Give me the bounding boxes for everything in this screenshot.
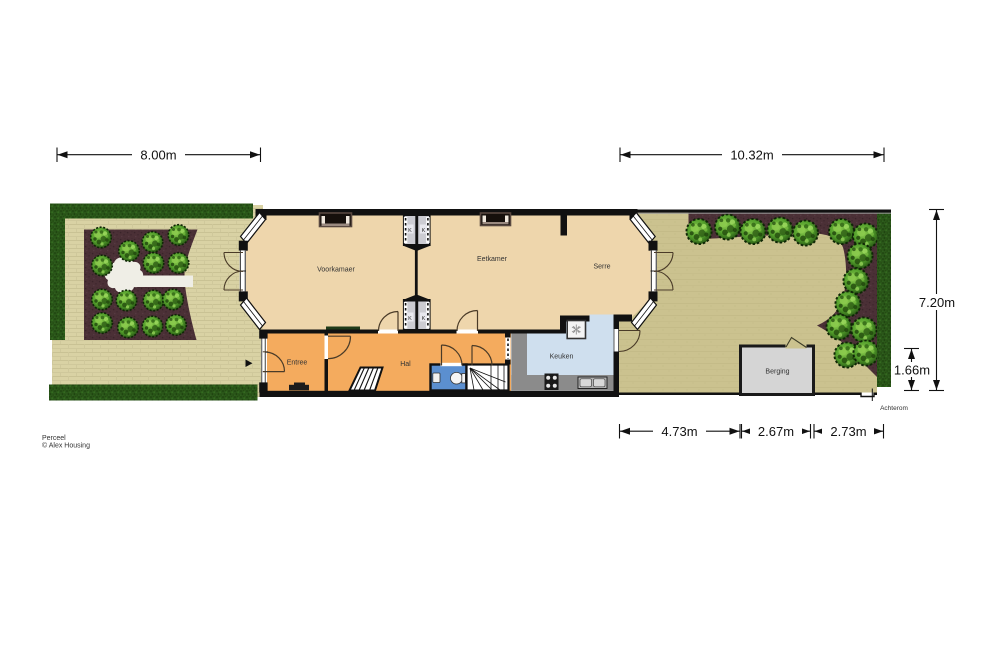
svg-text:Voorkamaer: Voorkamaer xyxy=(317,267,355,274)
svg-text:© Alex Housing: © Alex Housing xyxy=(42,442,90,450)
svg-text:K: K xyxy=(408,228,412,234)
svg-text:Perceel: Perceel xyxy=(42,435,66,442)
svg-text:Berging: Berging xyxy=(765,369,789,376)
svg-text:K: K xyxy=(408,316,412,322)
svg-text:Keuken: Keuken xyxy=(550,354,574,361)
svg-text:2.67m: 2.67m xyxy=(758,424,794,439)
svg-text:K: K xyxy=(422,316,426,322)
svg-text:Hal: Hal xyxy=(400,361,411,368)
svg-text:Achterom: Achterom xyxy=(880,405,908,412)
svg-text:1.66m: 1.66m xyxy=(894,363,930,378)
svg-text:K: K xyxy=(422,228,426,234)
svg-text:8.00m: 8.00m xyxy=(140,148,176,163)
svg-text:Serre: Serre xyxy=(593,264,610,271)
svg-text:4.73m: 4.73m xyxy=(661,424,697,439)
svg-text:2.73m: 2.73m xyxy=(830,424,866,439)
svg-text:Eetkamer: Eetkamer xyxy=(477,256,508,263)
svg-text:10.32m: 10.32m xyxy=(730,148,773,163)
svg-text:7.20m: 7.20m xyxy=(919,295,955,310)
svg-text:Entree: Entree xyxy=(287,360,308,367)
